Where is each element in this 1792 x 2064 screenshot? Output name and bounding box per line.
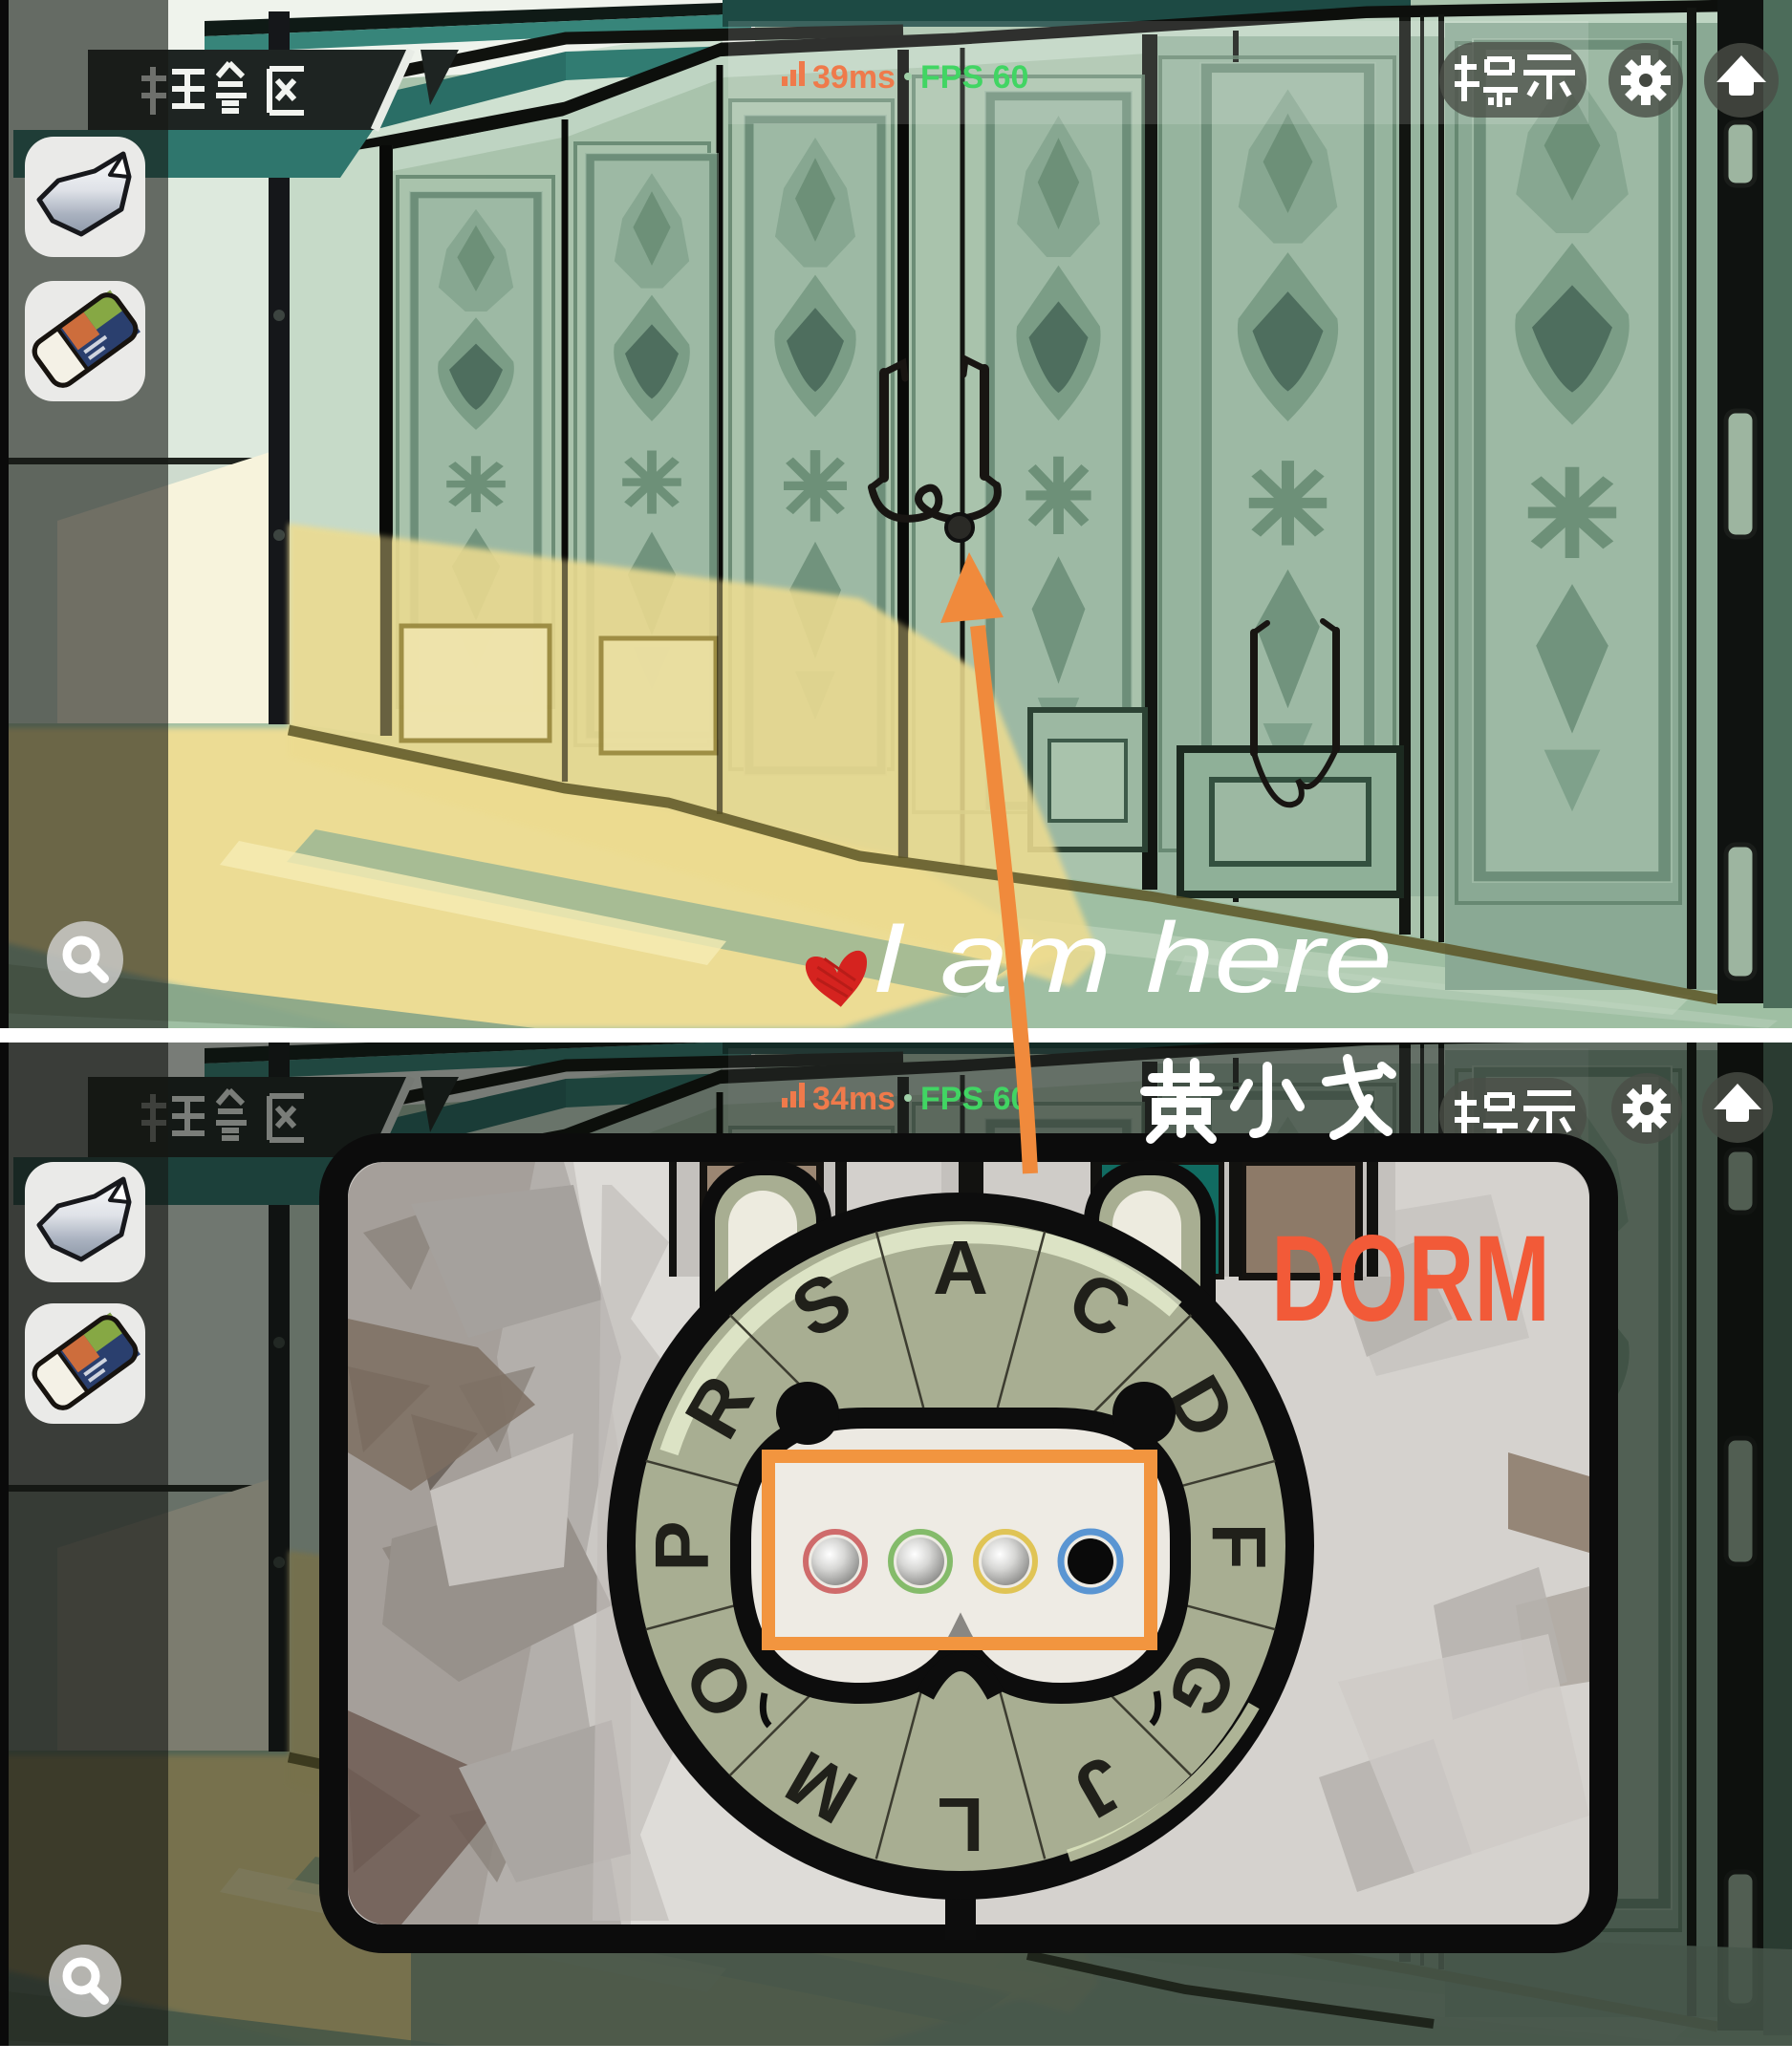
svg-text:F: F	[1197, 1523, 1282, 1570]
svg-text:DORM: DORM	[1271, 1211, 1550, 1347]
svg-text:L: L	[938, 1782, 984, 1867]
svg-text:34ms: 34ms	[812, 1081, 896, 1117]
svg-text:FPS 60: FPS 60	[920, 59, 1028, 96]
svg-text:A: A	[933, 1225, 988, 1310]
svg-text:FPS 60: FPS 60	[920, 1081, 1028, 1117]
svg-text:P: P	[639, 1520, 724, 1571]
svg-text:39ms: 39ms	[812, 59, 896, 96]
svg-text:I am here: I am here	[872, 903, 1393, 1014]
